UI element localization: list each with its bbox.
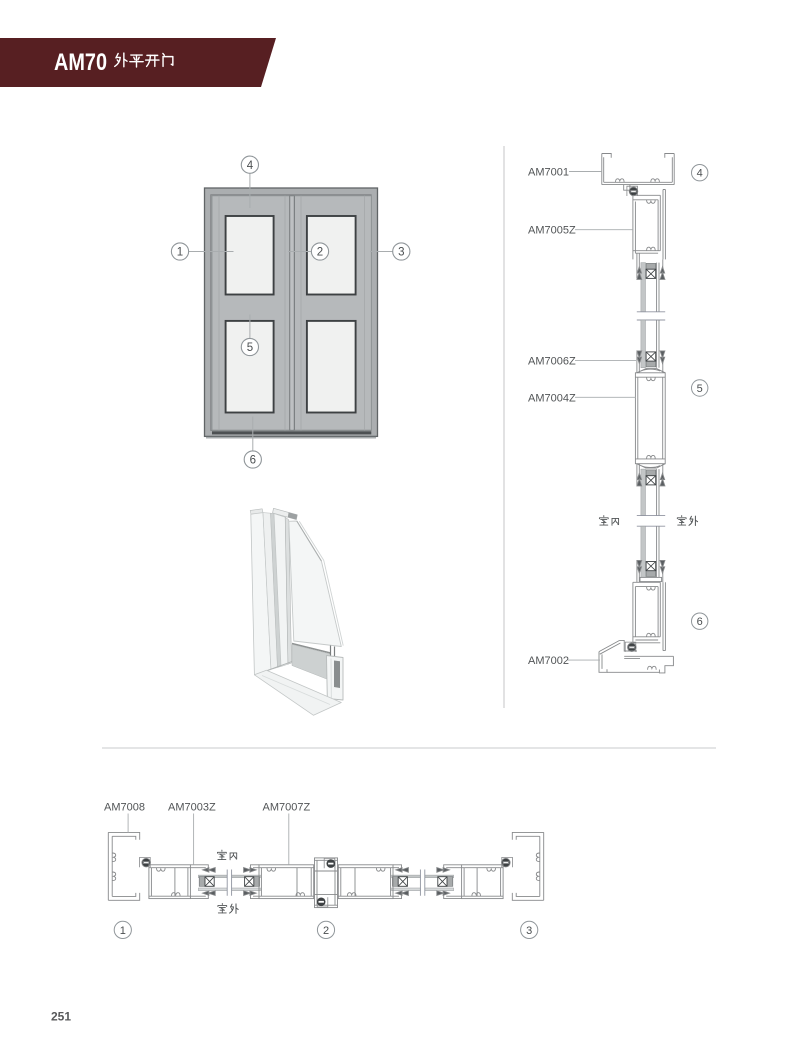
svg-text:AM7006Z: AM7006Z <box>528 356 576 368</box>
svg-text:5: 5 <box>247 342 253 354</box>
svg-text:6: 6 <box>250 455 256 467</box>
svg-text:4: 4 <box>697 168 703 180</box>
svg-text:AM7004Z: AM7004Z <box>528 392 576 404</box>
svg-text:4: 4 <box>247 160 254 172</box>
svg-text:1: 1 <box>120 925 126 937</box>
svg-text:AM70: AM70 <box>54 49 107 76</box>
svg-text:1: 1 <box>177 247 183 259</box>
svg-text:AM7003Z: AM7003Z <box>168 802 216 814</box>
svg-text:6: 6 <box>697 616 703 628</box>
svg-text:AM7001: AM7001 <box>528 167 569 179</box>
svg-text:5: 5 <box>697 383 703 395</box>
svg-text:3: 3 <box>526 925 532 937</box>
svg-text:AM7005Z: AM7005Z <box>528 225 576 237</box>
svg-text:AM7007Z: AM7007Z <box>263 802 311 814</box>
svg-text:2: 2 <box>323 925 329 937</box>
svg-text:2: 2 <box>317 247 323 259</box>
svg-text:3: 3 <box>398 247 404 259</box>
svg-text:AM7002: AM7002 <box>528 655 569 667</box>
svg-text:251: 251 <box>51 1010 71 1024</box>
svg-text:AM7008: AM7008 <box>104 802 145 814</box>
